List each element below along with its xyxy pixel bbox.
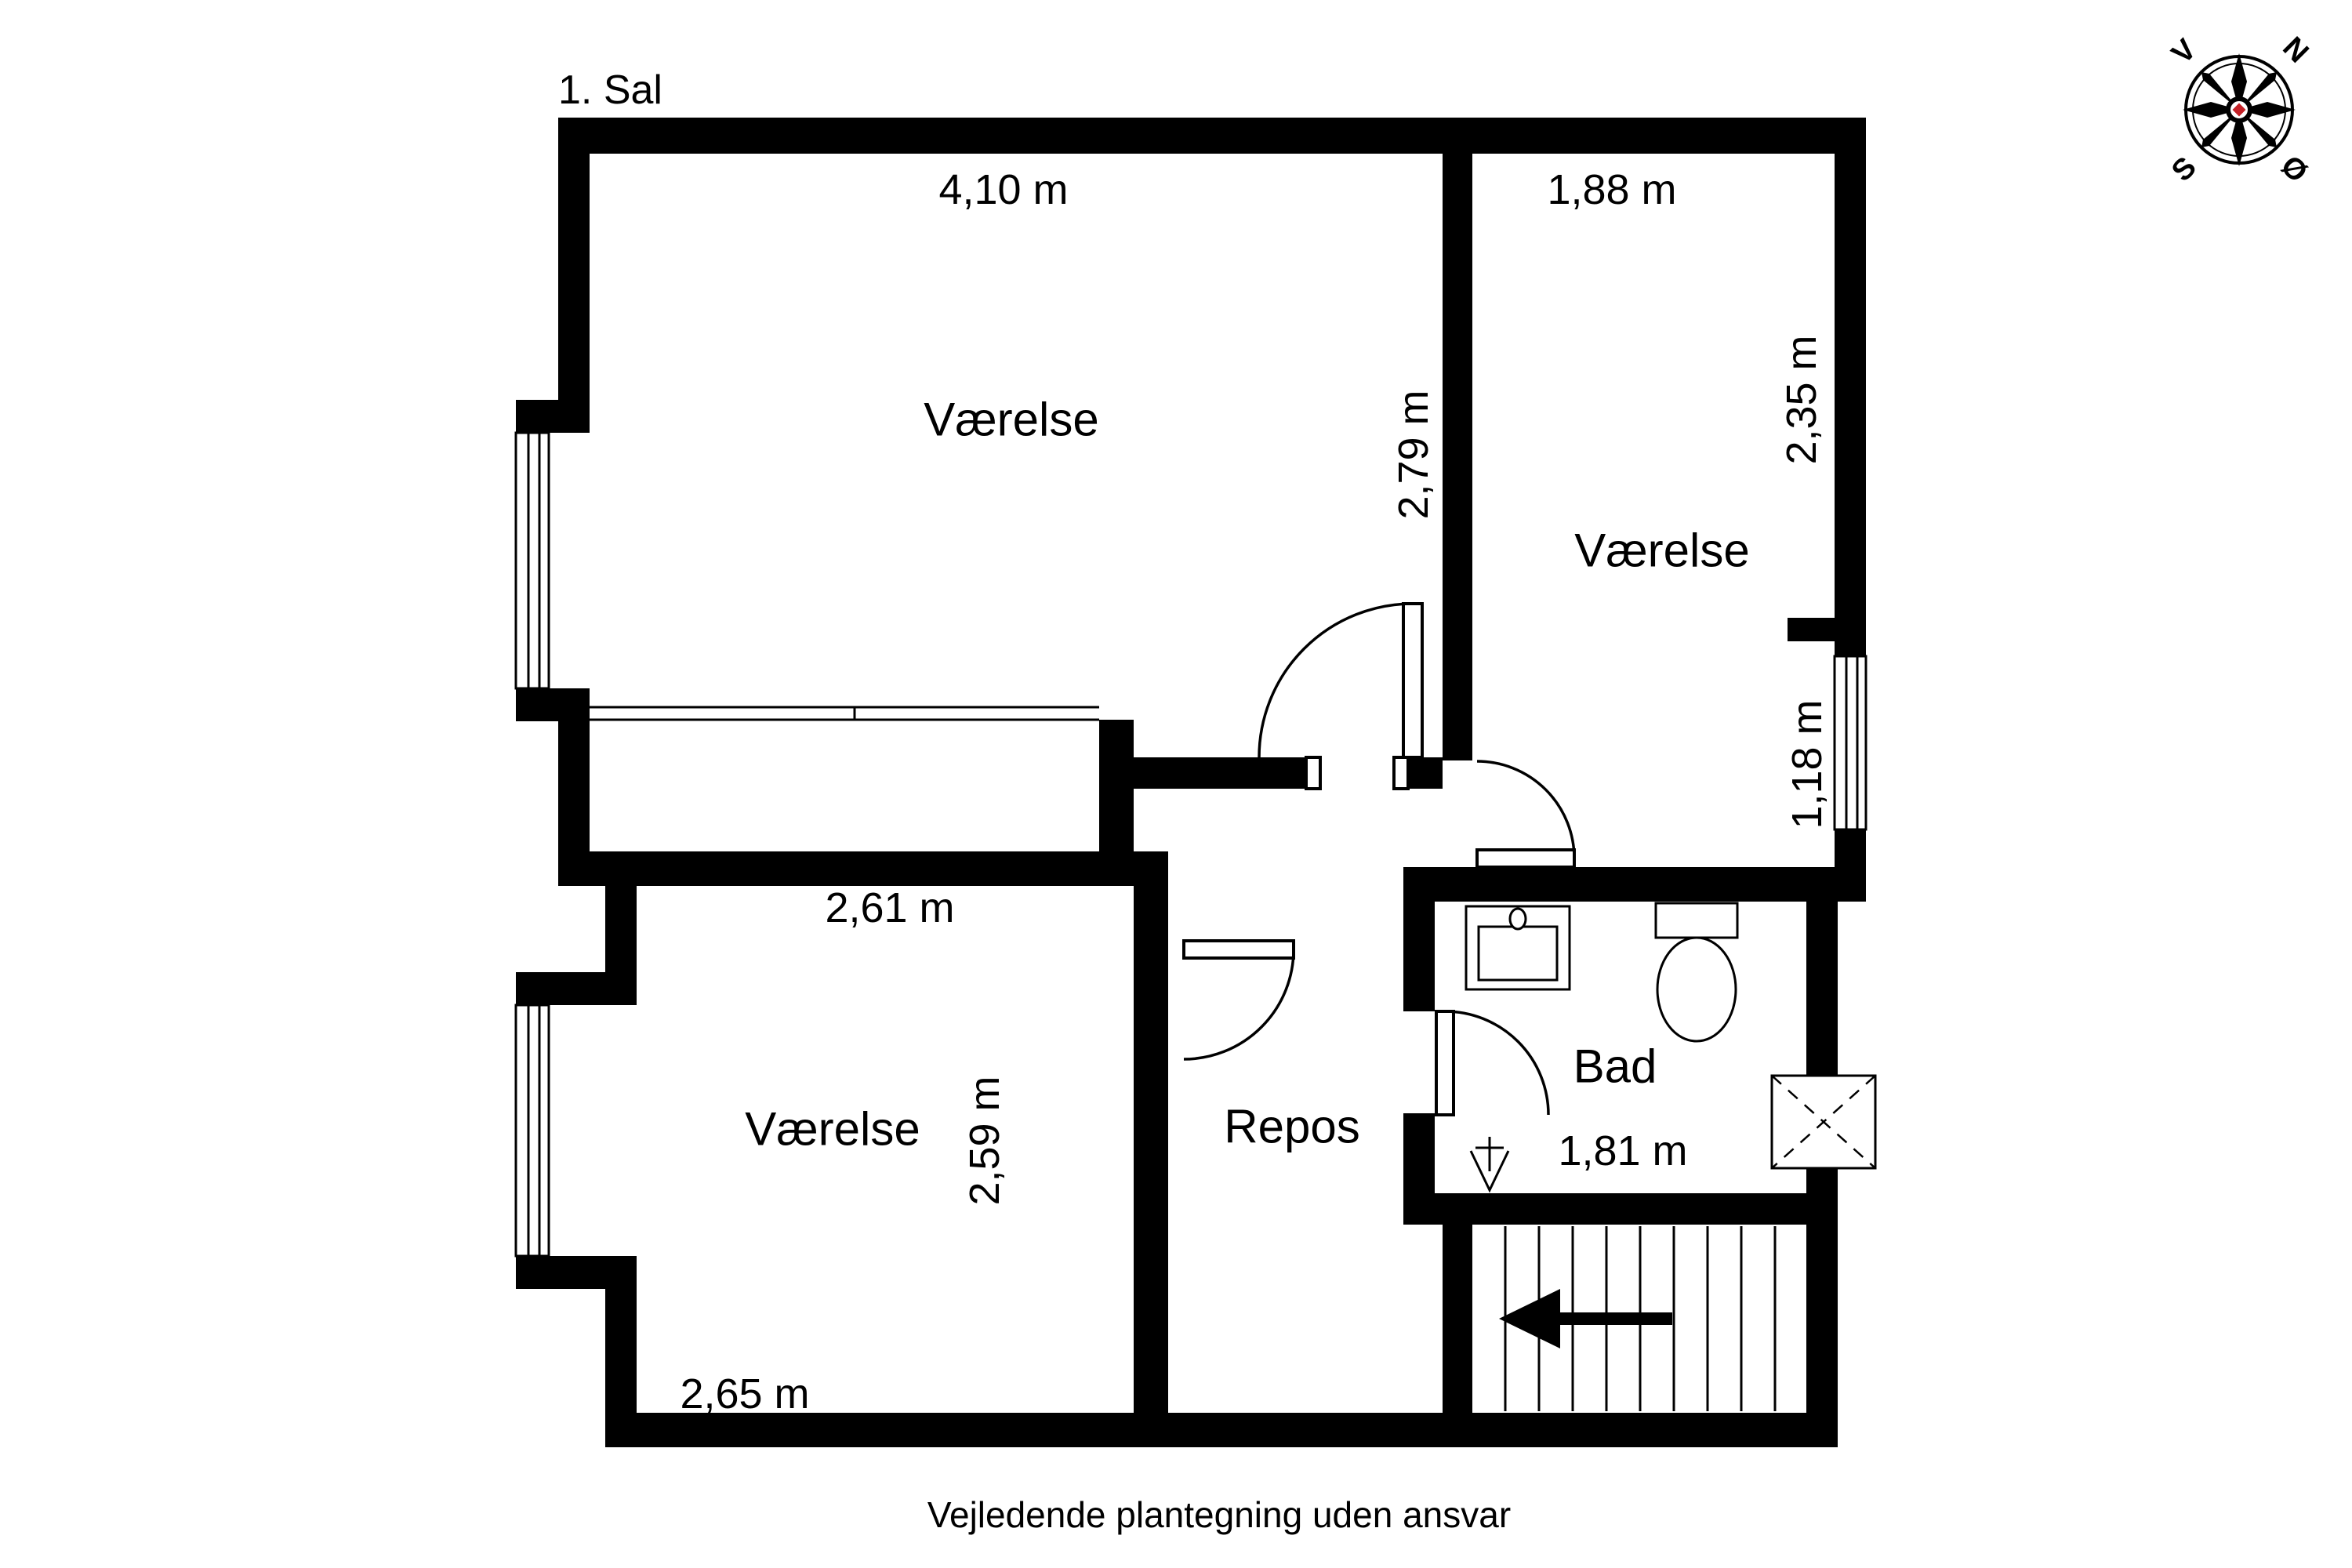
dim-label-261: 2,61 m xyxy=(825,884,954,931)
toilet-bowl xyxy=(1657,938,1736,1041)
compass-north-label: N xyxy=(2276,31,2314,69)
door-leaf xyxy=(1436,1011,1454,1115)
door-swing-arc xyxy=(1445,1011,1548,1115)
page-title: 1. Sal xyxy=(558,67,662,113)
chimney xyxy=(1772,1076,1875,1168)
dim-label-410: 4,10 m xyxy=(938,166,1068,213)
toilet-cistern xyxy=(1656,903,1737,938)
door-jamb xyxy=(1394,757,1408,789)
bay-block xyxy=(516,400,590,433)
sink xyxy=(1466,906,1570,989)
dim-label-259: 2,59 m xyxy=(961,1076,1008,1205)
wall-left-lower-a xyxy=(605,886,637,972)
room-label-bathroom: Bad xyxy=(1573,1040,1657,1093)
door-leaf xyxy=(1477,850,1574,867)
wall-bottom xyxy=(605,1413,1838,1447)
wall-stairwell-top xyxy=(1403,1193,1838,1225)
door-swing-arc xyxy=(1477,761,1574,858)
wall-bottom-left-room-east xyxy=(1134,886,1168,1413)
door-swing-arc xyxy=(1259,604,1413,757)
toilet xyxy=(1656,903,1737,1041)
wall-landing-bath-lower xyxy=(1403,1113,1435,1193)
compass-rose-icon: V N S Ø xyxy=(2165,31,2314,189)
room-label-landing: Repos xyxy=(1224,1101,1359,1153)
wall-room-divider-vertical xyxy=(1443,154,1472,760)
footer-disclaimer: Vejledende plantegning uden ansvar xyxy=(927,1494,1511,1535)
wall-right-upper xyxy=(1835,154,1866,656)
wall-left-lower-b xyxy=(605,1289,637,1413)
wall-left-upper xyxy=(558,154,590,400)
dim-label-265: 2,65 m xyxy=(680,1370,809,1417)
bay-block xyxy=(516,1256,637,1289)
room-label-bottom-left: Værelse xyxy=(745,1103,920,1156)
wall-top-left-room-bottom xyxy=(1134,757,1306,789)
door-jamb xyxy=(1306,757,1320,789)
stairs-direction-arrow-icon xyxy=(1499,1289,1672,1348)
wall-stub-top-right xyxy=(1788,618,1835,641)
wall-top xyxy=(558,118,1866,154)
room-label-top-right: Værelse xyxy=(1574,524,1749,577)
door-landing xyxy=(1184,941,1294,1059)
interior-walls xyxy=(558,154,1838,1413)
compass-south-label: S xyxy=(2165,151,2203,188)
stairs-down-marker-icon xyxy=(1471,1137,1508,1190)
wall-door-corner-block xyxy=(1408,757,1443,789)
door-bathroom xyxy=(1436,1011,1548,1115)
window-hall xyxy=(1835,656,1866,829)
compass-east-label: Ø xyxy=(2274,150,2314,190)
faucet xyxy=(1510,909,1526,929)
dim-label-181: 1,81 m xyxy=(1558,1127,1687,1174)
dim-label-118: 1,18 m xyxy=(1784,699,1831,829)
wall-left-mid xyxy=(558,721,590,851)
door-leaf xyxy=(1403,604,1422,757)
door-swing-arc xyxy=(1184,949,1294,1059)
wall-landing-bath-upper xyxy=(1403,902,1435,1011)
closet-front xyxy=(590,707,1099,720)
door-top-right-room xyxy=(1477,761,1574,867)
window-bottom-left-room xyxy=(516,1005,549,1256)
compass-west-label: V xyxy=(2165,33,2203,71)
floor-plan-page: V N S Ø 1. Sal Værelse Værelse Værelse R… xyxy=(0,0,2352,1568)
wall-between-left-rooms xyxy=(558,851,1168,886)
wall-bath-top xyxy=(1403,867,1866,902)
wall-stairwell-west xyxy=(1443,1225,1472,1413)
dim-label-235: 2,35 m xyxy=(1778,335,1825,464)
dim-label-279: 2,79 m xyxy=(1390,390,1437,519)
wall-right-small xyxy=(1835,829,1866,867)
room-label-top-left: Værelse xyxy=(924,394,1098,446)
bay-block xyxy=(516,688,590,721)
bay-block xyxy=(516,972,637,1005)
window-top-left-room xyxy=(516,433,549,688)
floor-plan-drawing: V N S Ø 1. Sal Værelse Værelse Værelse R… xyxy=(0,0,2352,1568)
door-leaf xyxy=(1184,941,1294,958)
dim-label-188: 1,88 m xyxy=(1547,166,1676,213)
